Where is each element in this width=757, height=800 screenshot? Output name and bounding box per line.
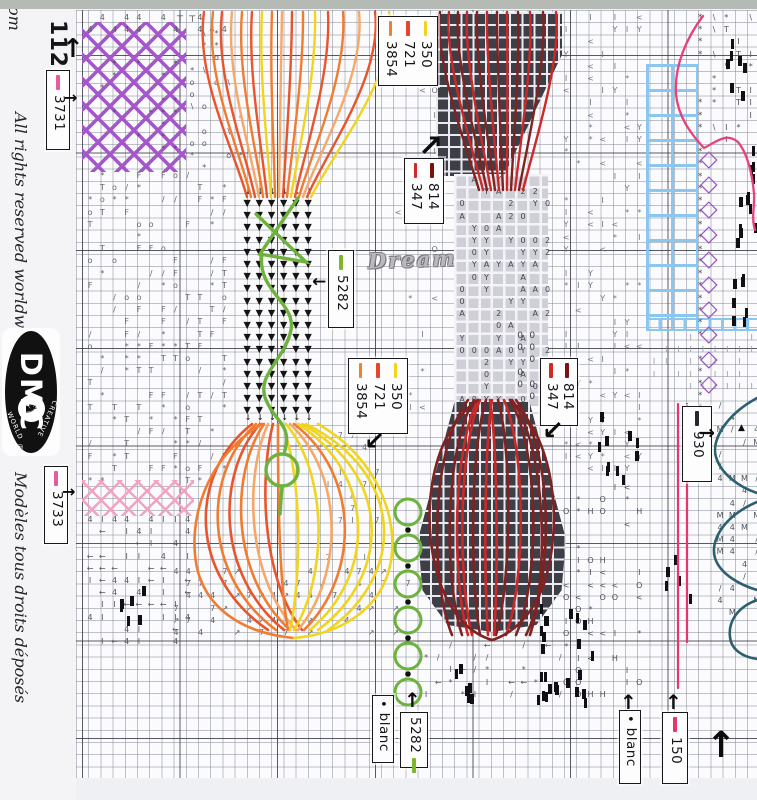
diamond-chain-symbol: ◇	[700, 323, 718, 346]
label-row: 350	[419, 21, 433, 81]
thread-label-blanc-right: •blanc	[619, 710, 641, 784]
bar-symbol	[467, 690, 471, 700]
bar-symbol	[743, 63, 747, 73]
color-swatch	[359, 363, 363, 378]
symbol-region-18: ↓↓↓↓↓↓	[242, 186, 316, 198]
bar-symbol	[470, 694, 474, 704]
diamond-chain-symbol: ◇	[700, 248, 718, 271]
bar-symbol	[459, 664, 463, 674]
bar-symbol	[665, 581, 669, 591]
bar-symbol	[142, 586, 146, 596]
bar-symbol	[540, 672, 544, 682]
diamond-chain-symbol: ◇	[700, 298, 718, 321]
pointer-arrow-icon: ↙	[364, 428, 385, 453]
bar-symbol	[548, 684, 552, 694]
thread-label-814-top: 814347	[404, 158, 444, 224]
bar-symbol	[752, 162, 756, 172]
label-row: 3854	[354, 363, 368, 429]
color-swatch	[339, 255, 343, 270]
pointer-arrow-icon: ←	[312, 274, 326, 291]
bar-symbol	[628, 431, 632, 441]
thread-code: 3731	[51, 95, 65, 131]
label-row: 3731	[51, 75, 65, 145]
thread-code: 3733	[49, 491, 63, 527]
symbol-region-14: /4M/4/M//4MM/44/MMM44MM4/M4/4//44MM	[714, 400, 757, 618]
bar-symbol	[584, 698, 588, 708]
thread-label-blanc-mid: •blanc	[372, 695, 394, 763]
diamond-chain-symbol: ◇	[700, 148, 718, 171]
bar-symbol	[747, 192, 751, 202]
bar-symbol	[544, 672, 548, 682]
bar-symbol	[749, 204, 753, 214]
pointer-arrow-icon: ▲	[738, 424, 745, 433]
symbol-region-21: ⊤⊤	[174, 14, 202, 26]
thread-code: 347	[544, 383, 558, 410]
bar-symbol	[743, 317, 747, 327]
bar-symbol	[583, 620, 587, 630]
label-row: •blanc	[376, 700, 390, 758]
bar-symbol	[127, 616, 131, 626]
thread-code: 347	[409, 183, 423, 210]
thread-label-5282-mid: 5282	[328, 250, 354, 328]
label-row: 930	[690, 411, 704, 477]
pointer-arrow-icon: ↗	[418, 132, 443, 162]
diamond-chain-symbol: ◇	[700, 373, 718, 396]
dot-symbol: •	[624, 715, 637, 723]
color-swatch	[424, 21, 428, 36]
diamond-chain-symbol: ◇	[700, 223, 718, 246]
bar-symbol	[605, 436, 609, 446]
symbol-region-11: \*\\TI\TI\***TI*TII\I*I	[708, 12, 757, 150]
margin-corner-text: om	[0, 6, 24, 52]
bar-symbol	[732, 298, 736, 308]
diamond-chain-symbol: ◇	[700, 198, 718, 221]
registered-mark: ®	[15, 443, 24, 451]
color-swatch	[549, 363, 553, 378]
bar-symbol	[575, 687, 579, 697]
diamond-chain-symbol: ◇	[700, 348, 718, 371]
color-swatch	[673, 717, 677, 732]
thread-code: 350	[419, 41, 433, 68]
bar-symbol	[591, 651, 595, 661]
thread-code: 814	[560, 383, 574, 410]
thread-label-350-top: 3507213854	[378, 16, 438, 86]
bar-symbol	[636, 438, 640, 448]
bar-symbol	[736, 238, 740, 248]
bar-symbol	[616, 466, 620, 476]
label-row: 721	[371, 363, 385, 429]
symbol-region-2: *****************	[96, 58, 180, 162]
symbol-region-16: 000000000	[514, 330, 536, 400]
bar-symbol	[569, 609, 573, 619]
bar-symbol	[730, 51, 734, 61]
bar-symbol	[689, 594, 693, 604]
label-row: 3733	[49, 471, 63, 539]
color-swatch	[56, 75, 60, 90]
pointer-arrow-icon: ↑	[62, 36, 84, 62]
symbol-region-1: \***o*\oo\o\o\*o\oo\\*o**	[186, 28, 244, 174]
color-swatch	[376, 363, 380, 378]
label-row: 5282	[334, 255, 348, 323]
bar-symbol	[598, 442, 602, 452]
label-row: 3854	[384, 21, 398, 81]
bar-symbol	[635, 451, 639, 461]
bar-symbol	[752, 146, 756, 156]
scan-top-edge	[0, 0, 757, 9]
thread-code: 150	[668, 737, 682, 764]
bar-symbol	[731, 39, 735, 49]
thread-code: 3854	[354, 383, 368, 419]
symbol-region-5: 447↗4474↗77747↗477444↗7↗4↗447477↗↗4↗↗↗74…	[170, 566, 420, 644]
color-swatch	[412, 758, 416, 773]
thread-label-5282-bottom: 5282	[400, 712, 428, 768]
thread-code: 3854	[384, 41, 398, 77]
color-swatch	[565, 363, 569, 378]
label-row: 5282	[407, 717, 421, 763]
diamond-chain-symbol: ◇	[700, 173, 718, 196]
bar-symbol	[666, 567, 670, 577]
symbol-region-12: I<*O*O*HOH<*IOH*I<I<<<<OO<OO<O*IOHO<<I**…	[560, 482, 648, 702]
label-row: 814	[560, 363, 574, 421]
pointer-arrow-icon: ↑	[706, 728, 736, 764]
bar-symbol	[130, 596, 134, 606]
dream-watermark: Dream	[368, 245, 457, 273]
thread-code: 350	[389, 383, 403, 410]
bar-symbol	[739, 224, 743, 234]
color-swatch	[414, 163, 418, 178]
thread-label-150: 150	[662, 712, 688, 784]
thread-code: blanc	[376, 713, 390, 752]
bar-symbol	[542, 691, 546, 701]
bar-symbol	[730, 83, 734, 93]
bar-symbol	[741, 91, 745, 101]
cross-stitch-pattern-scan: om All rights reserved worldwide Modèles…	[0, 0, 757, 800]
pointer-arrow-icon: →	[64, 90, 77, 106]
bar-symbol	[742, 274, 746, 284]
dmc-logo-ellipse: DMC ♞ CREATIVE WORLD ®	[5, 331, 57, 453]
bar-symbol	[138, 615, 142, 625]
color-swatch	[389, 21, 393, 36]
bar-symbol	[606, 466, 610, 476]
bar-symbol	[541, 644, 545, 654]
bar-symbol	[455, 669, 459, 679]
label-row: 350	[389, 363, 403, 429]
bar-symbol	[752, 174, 756, 184]
thread-label-930: 930	[682, 406, 712, 482]
thread-code: 5282	[407, 717, 421, 753]
thread-label-3731: 3731	[46, 70, 70, 150]
modeles-deposes-text: Modèles tous droits déposés	[6, 472, 30, 800]
bar-symbol	[120, 599, 124, 609]
bar-symbol	[540, 604, 544, 614]
bar-symbol	[576, 613, 580, 623]
bar-symbol	[542, 632, 546, 642]
thread-code: 5282	[334, 275, 348, 311]
pointer-arrow-icon: ↑	[665, 692, 682, 712]
thread-code: 814	[426, 183, 440, 210]
label-row: 150	[668, 717, 682, 779]
label-row: 814	[426, 163, 440, 219]
thread-label-3733: 3733	[44, 466, 68, 544]
pointer-arrow-icon: ↑	[620, 692, 637, 712]
label-row: •blanc	[623, 715, 637, 779]
color-swatch	[406, 21, 410, 36]
bar-symbol	[566, 678, 570, 688]
bar-symbol	[537, 695, 541, 705]
bar-symbol	[745, 308, 749, 318]
bar-symbol	[739, 197, 743, 207]
thread-code: blanc	[623, 728, 637, 767]
bar-symbol	[555, 685, 559, 695]
color-swatch	[431, 163, 435, 178]
pointer-arrow-icon: →	[699, 424, 715, 443]
thread-label-350-mid: 3507213854	[348, 358, 408, 434]
pointer-arrow-icon: ↙	[542, 418, 564, 444]
symbol-region-20: ▼▼▼▼▼▼▼▼▼▼▼▼▼▼▼▼▼▼▼▼▼▼▼▼▼▼▼▼▼▼▼▼▼▼▼▼▼▼▼▼…	[241, 198, 314, 412]
thread-code: 721	[401, 41, 415, 68]
bar-symbol	[733, 279, 737, 289]
bar-symbol	[544, 616, 548, 626]
diamond-chain-symbol: ◇	[700, 273, 718, 296]
pointer-arrow-icon: →	[62, 484, 75, 500]
dot-symbol: •	[377, 700, 390, 708]
label-row: 347	[409, 163, 423, 219]
label-row: 347	[544, 363, 558, 421]
color-swatch	[394, 363, 398, 378]
bar-symbol	[577, 639, 581, 649]
bar-symbol	[738, 56, 742, 66]
bar-symbol	[678, 576, 682, 586]
bar-symbol	[600, 412, 604, 422]
bar-symbol	[622, 475, 626, 485]
color-swatch	[54, 471, 58, 486]
bar-symbol	[732, 316, 736, 326]
bar-symbol	[674, 555, 678, 565]
pointer-arrow-icon: ↑	[404, 690, 421, 710]
label-row: 721	[401, 21, 415, 81]
page-bottom-margin	[76, 778, 757, 800]
thread-code: 721	[371, 383, 385, 410]
pattern-block-trellis-3	[646, 64, 698, 326]
dmc-logo: DMC ♞ CREATIVE WORLD ®	[2, 328, 60, 456]
symbol-region-3: *FFo/To/*T**o**//F*FoTF//TooF**TFFoooF/F…	[84, 170, 234, 482]
horse-head-icon: ♞	[18, 395, 45, 422]
bar-symbol	[578, 670, 582, 680]
bar-symbol	[582, 689, 586, 699]
